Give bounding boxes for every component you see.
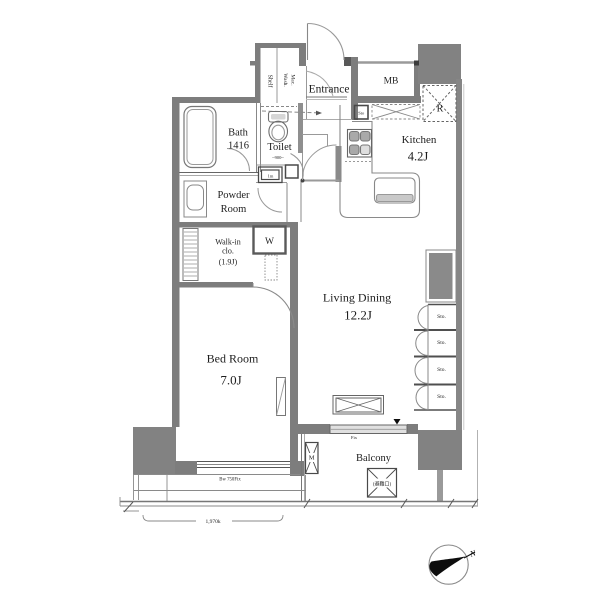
svg-text:1,970k: 1,970k [205,519,220,525]
svg-text:(避難口): (避難口) [373,481,392,488]
svg-text:12.2J: 12.2J [344,308,372,323]
svg-text:R: R [437,104,444,115]
svg-text:Room: Room [221,204,247,215]
svg-text:Wash.: Wash. [282,73,288,87]
svg-text:Balcony: Balcony [356,453,392,464]
svg-text:Sto.: Sto. [437,314,446,320]
svg-text:Sto.: Sto. [437,340,446,346]
svg-text:Toilet: Toilet [267,142,291,153]
svg-text:W: W [265,237,274,247]
svg-text:Bath: Bath [228,128,249,139]
svg-text:M: M [309,455,315,462]
svg-text:1m: 1m [268,174,274,179]
svg-text:Sto.: Sto. [437,367,446,373]
svg-text:(1.9J): (1.9J) [219,258,238,267]
svg-text:Living Dining: Living Dining [323,291,391,305]
svg-text:Fix: Fix [351,435,358,440]
svg-text:Bed Room: Bed Room [207,352,259,366]
svg-text:Sto.: Sto. [437,394,446,400]
svg-text:Walk-in: Walk-in [215,238,241,247]
svg-text:Shelf: Shelf [267,75,274,88]
svg-text:Powder: Powder [217,190,250,201]
svg-text:clo.: clo. [222,247,234,256]
svg-text:Bw 750Fix: Bw 750Fix [219,478,241,483]
svg-text:MB: MB [384,77,399,87]
svg-text:1416: 1416 [228,141,249,152]
svg-text:4.2J: 4.2J [408,150,429,164]
svg-text:Mac.: Mac. [290,74,296,86]
svg-text:Entrance: Entrance [309,84,350,96]
svg-text:~900~: ~900~ [272,155,284,160]
svg-text:Sto: Sto [358,111,365,116]
svg-text:Kitchen: Kitchen [402,134,437,146]
svg-text:7.0J: 7.0J [220,373,241,388]
